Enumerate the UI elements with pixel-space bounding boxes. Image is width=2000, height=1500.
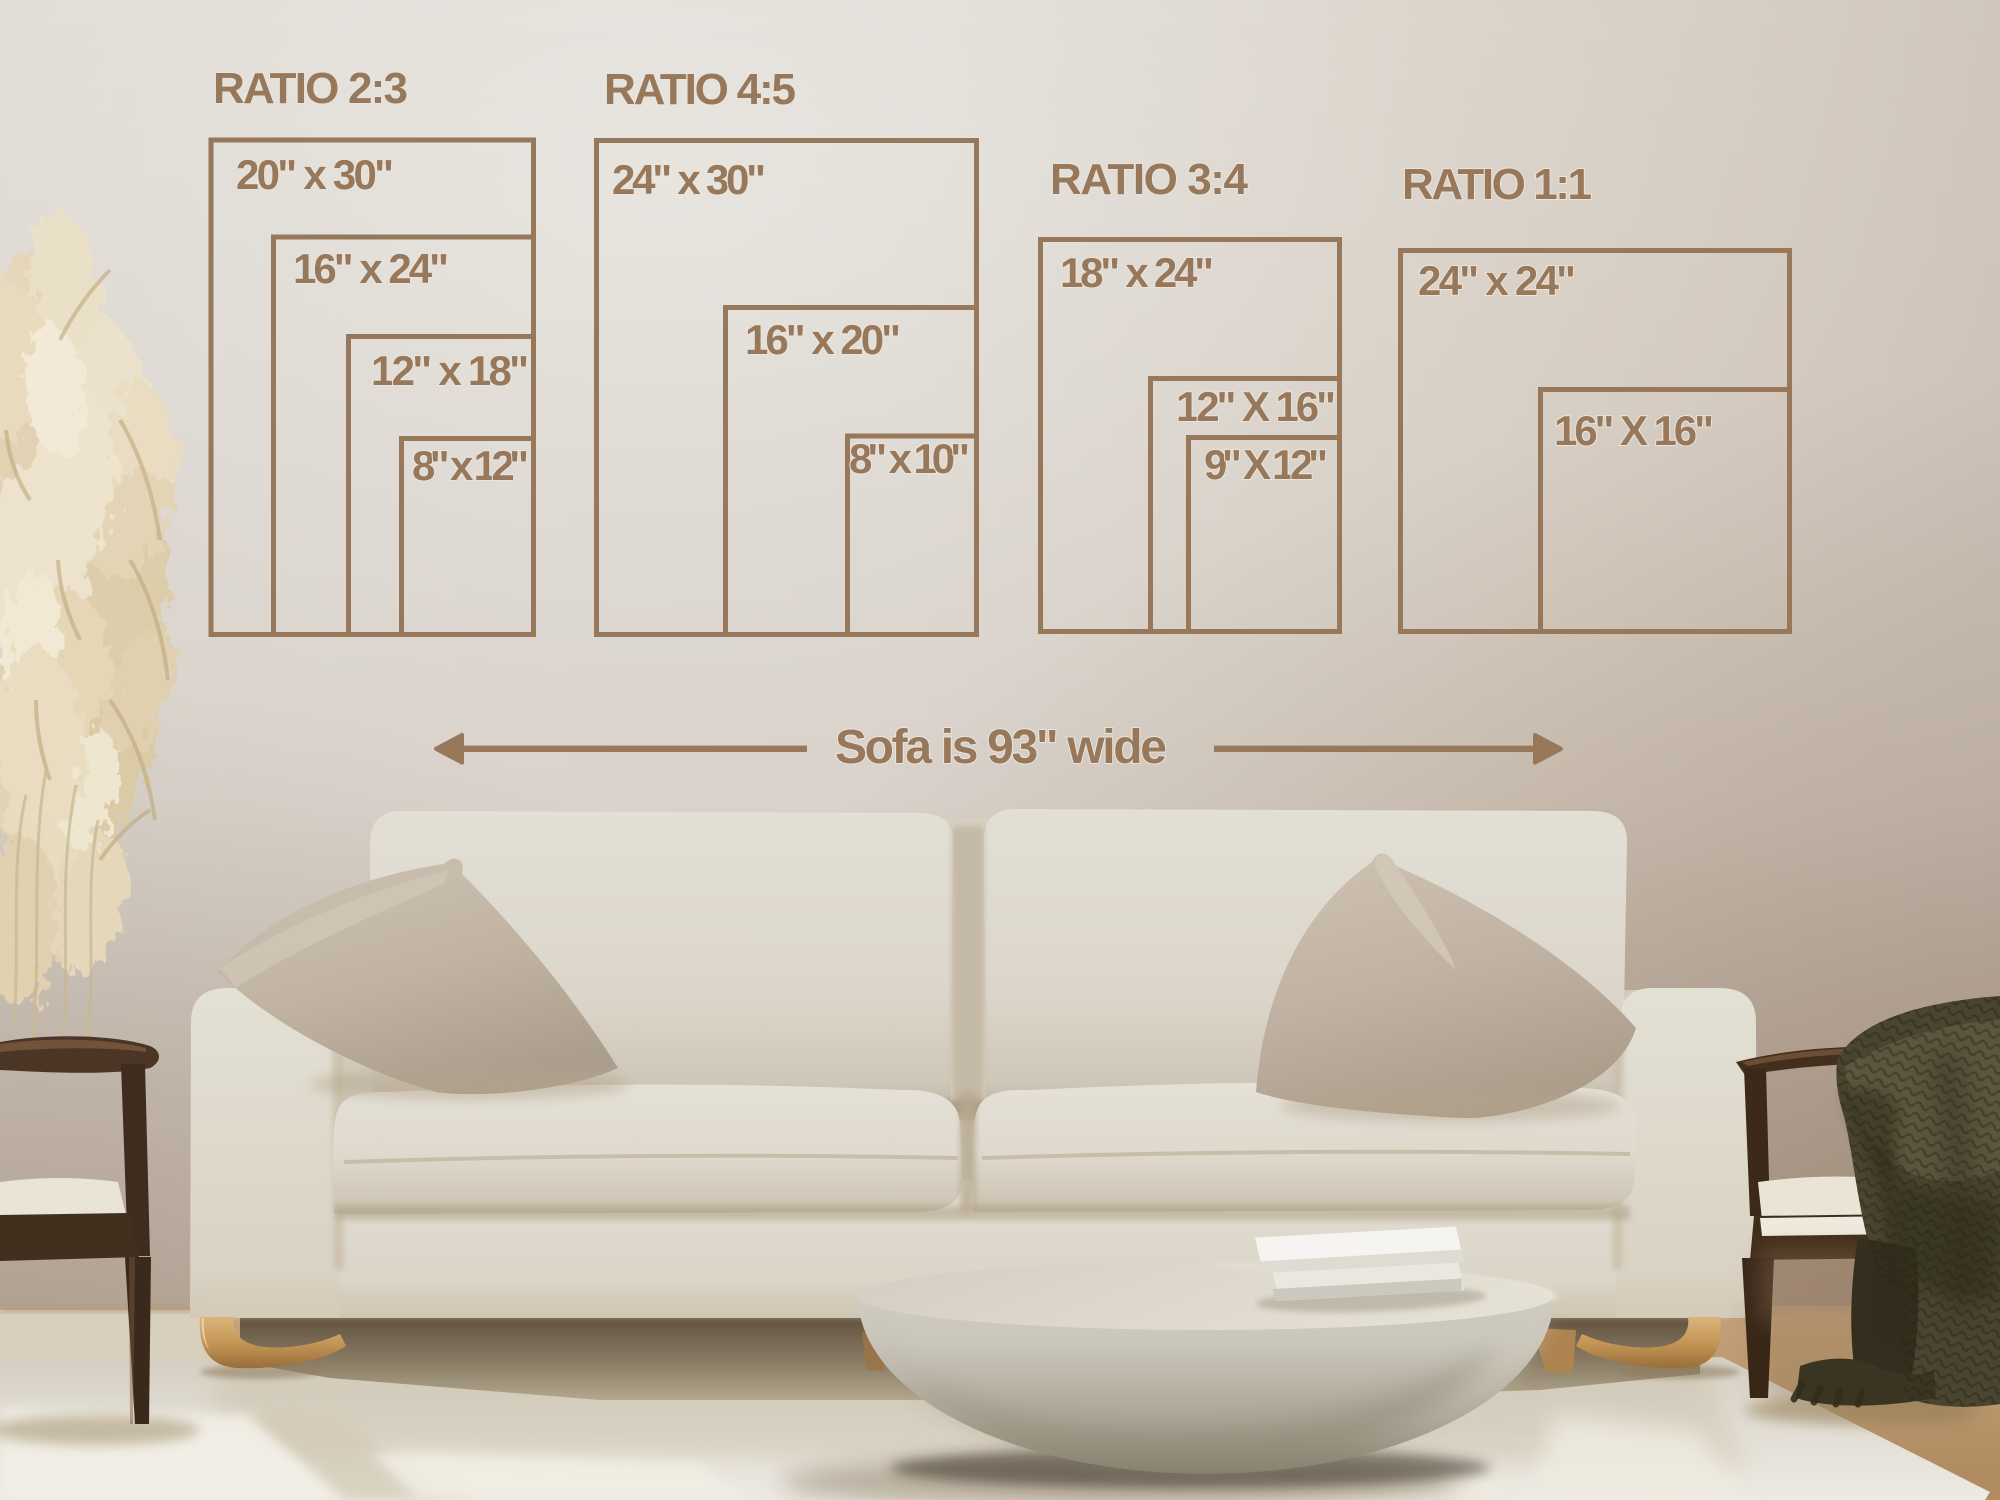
svg-text:24" x 30": 24" x 30": [612, 156, 766, 203]
svg-text:12" X 16": 12" X 16": [1176, 383, 1336, 430]
svg-text:18" x 24": 18" x 24": [1060, 249, 1214, 296]
svg-text:Sofa is 93" wide: Sofa is 93" wide: [835, 721, 1167, 774]
svg-text:RATIO 1:1: RATIO 1:1: [1402, 160, 1592, 209]
svg-text:24" x 24": 24" x 24": [1418, 257, 1576, 304]
svg-text:RATIO 2:3: RATIO 2:3: [213, 64, 408, 113]
svg-text:9" X 12": 9" X 12": [1204, 441, 1328, 488]
svg-text:8" x 10": 8" x 10": [849, 435, 970, 482]
svg-text:16" x 24": 16" x 24": [293, 245, 449, 292]
svg-text:16" X 16": 16" X 16": [1554, 407, 1714, 454]
svg-text:8" x 12": 8" x 12": [412, 442, 529, 489]
svg-text:RATIO 3:4: RATIO 3:4: [1050, 155, 1249, 204]
svg-text:RATIO 4:5: RATIO 4:5: [604, 65, 796, 114]
svg-text:12" x 18": 12" x 18": [371, 347, 529, 394]
svg-text:20" x 30": 20" x 30": [236, 151, 394, 198]
svg-text:16" x 20": 16" x 20": [745, 316, 901, 363]
